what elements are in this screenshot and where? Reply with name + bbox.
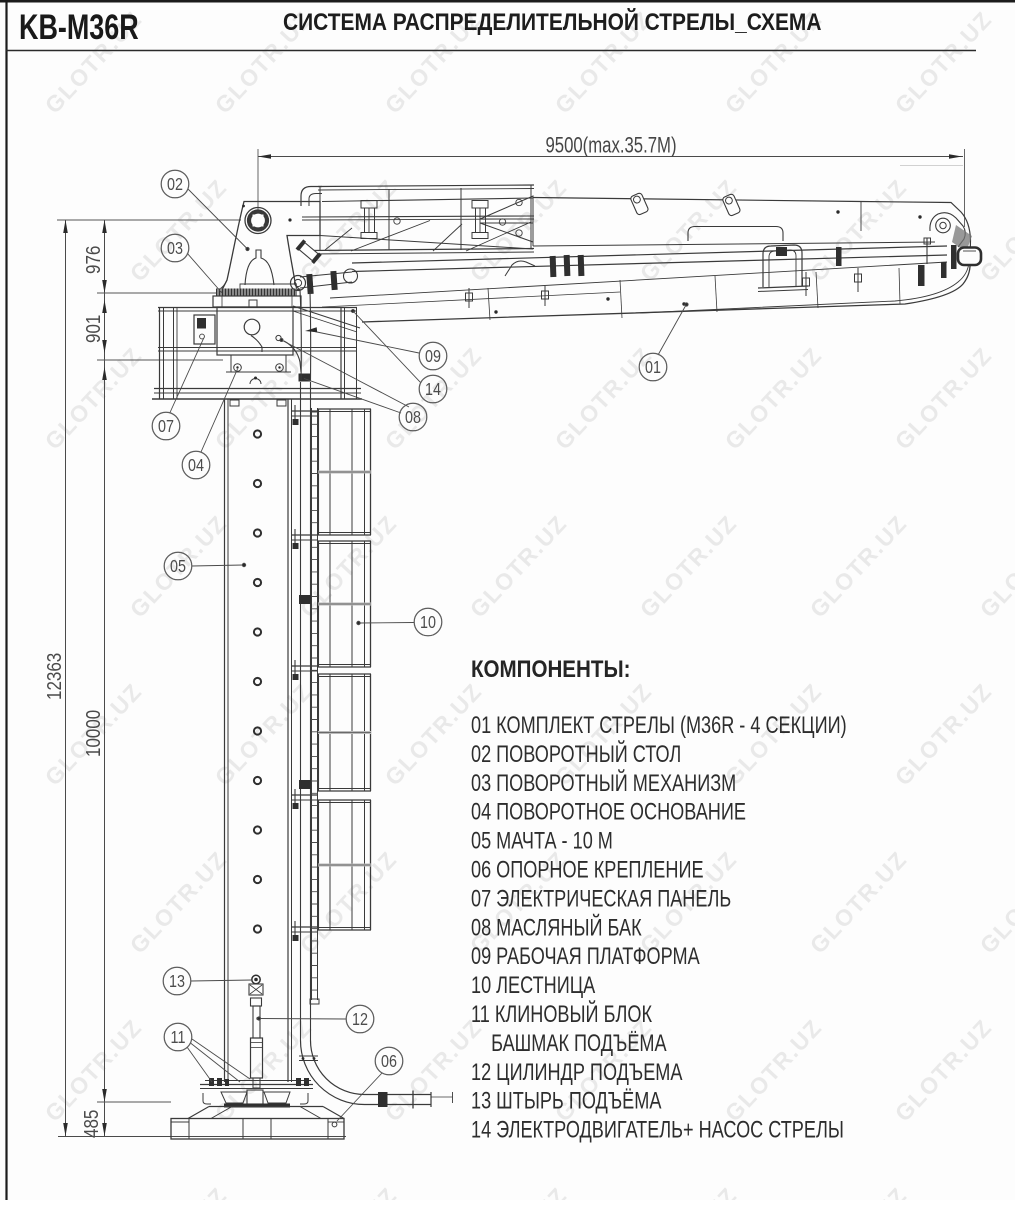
svg-text:14 ЭЛЕКТРОДВИГАТЕЛЬ+ НАСОС СТР: 14 ЭЛЕКТРОДВИГАТЕЛЬ+ НАСОС СТРЕЛЫ (471, 1116, 844, 1143)
svg-text:05 МАЧТА - 10 М: 05 МАЧТА - 10 М (471, 827, 613, 854)
svg-text:10: 10 (420, 614, 436, 633)
svg-text:06: 06 (381, 1053, 397, 1072)
svg-text:07: 07 (158, 418, 174, 437)
svg-text:14: 14 (425, 381, 441, 400)
svg-text:02 ПОВОРОТНЫЙ СТОЛ: 02 ПОВОРОТНЫЙ СТОЛ (471, 739, 681, 767)
svg-text:901: 901 (82, 315, 105, 343)
svg-text:12: 12 (352, 1011, 368, 1030)
svg-text:09: 09 (425, 348, 441, 367)
svg-text:СИСТЕМА РАСПРЕДЕЛИТЕЛЬНОЙ СТРЕ: СИСТЕМА РАСПРЕДЕЛИТЕЛЬНОЙ СТРЕЛЫ_СХЕМА (283, 9, 821, 36)
svg-text:БАШМАК ПОДЪЁМА: БАШМАК ПОДЪЁМА (471, 1029, 667, 1056)
svg-text:02: 02 (167, 176, 183, 195)
svg-text:КОМПОНЕНТЫ:: КОМПОНЕНТЫ: (471, 655, 630, 682)
svg-text:976: 976 (82, 246, 105, 274)
svg-text:04 ПОВОРОТНОЕ ОСНОВАНИЕ: 04 ПОВОРОТНОЕ ОСНОВАНИЕ (471, 798, 746, 825)
svg-text:13: 13 (169, 973, 185, 992)
svg-text:11 КЛИНОВЫЙ БЛОК: 11 КЛИНОВЫЙ БЛОК (471, 999, 653, 1027)
svg-text:KB-M36R: KB-M36R (19, 8, 139, 47)
svg-text:01 КОМПЛЕКТ СТРЕЛЫ (M36R - 4 С: 01 КОМПЛЕКТ СТРЕЛЫ (M36R - 4 СЕКЦИИ) (471, 712, 847, 739)
svg-text:04: 04 (188, 457, 204, 476)
svg-text:13 ШТЫРЬ ПОДЪЁМА: 13 ШТЫРЬ ПОДЪЁМА (471, 1087, 662, 1114)
svg-text:12363: 12363 (43, 653, 66, 700)
svg-text:485: 485 (80, 1110, 103, 1138)
svg-text:08: 08 (405, 409, 421, 428)
svg-text:01: 01 (645, 359, 661, 378)
svg-text:07 ЭЛЕКТРИЧЕСКАЯ ПАНЕЛЬ: 07 ЭЛЕКТРИЧЕСКАЯ ПАНЕЛЬ (471, 885, 731, 912)
svg-text:05: 05 (170, 558, 186, 577)
svg-text:9500(max.35.7M): 9500(max.35.7M) (545, 133, 676, 158)
svg-text:08 МАСЛЯНЫЙ БАК: 08 МАСЛЯНЫЙ БАК (471, 913, 642, 941)
svg-text:03: 03 (167, 240, 183, 259)
svg-text:06 ОПОРНОЕ КРЕПЛЕНИЕ: 06 ОПОРНОЕ КРЕПЛЕНИЕ (471, 856, 704, 883)
svg-text:11: 11 (171, 1029, 186, 1048)
svg-text:09 РАБОЧАЯ ПЛАТФОРМА: 09 РАБОЧАЯ ПЛАТФОРМА (471, 943, 700, 970)
svg-text:12 ЦИЛИНДР ПОДЪЕМА: 12 ЦИЛИНДР ПОДЪЕМА (471, 1058, 683, 1085)
svg-text:10 ЛЕСТНИЦА: 10 ЛЕСТНИЦА (471, 972, 596, 999)
svg-text:03 ПОВОРОТНЫЙ МЕХАНИЗМ: 03 ПОВОРОТНЫЙ МЕХАНИЗМ (471, 768, 736, 796)
svg-text:10000: 10000 (82, 710, 105, 757)
